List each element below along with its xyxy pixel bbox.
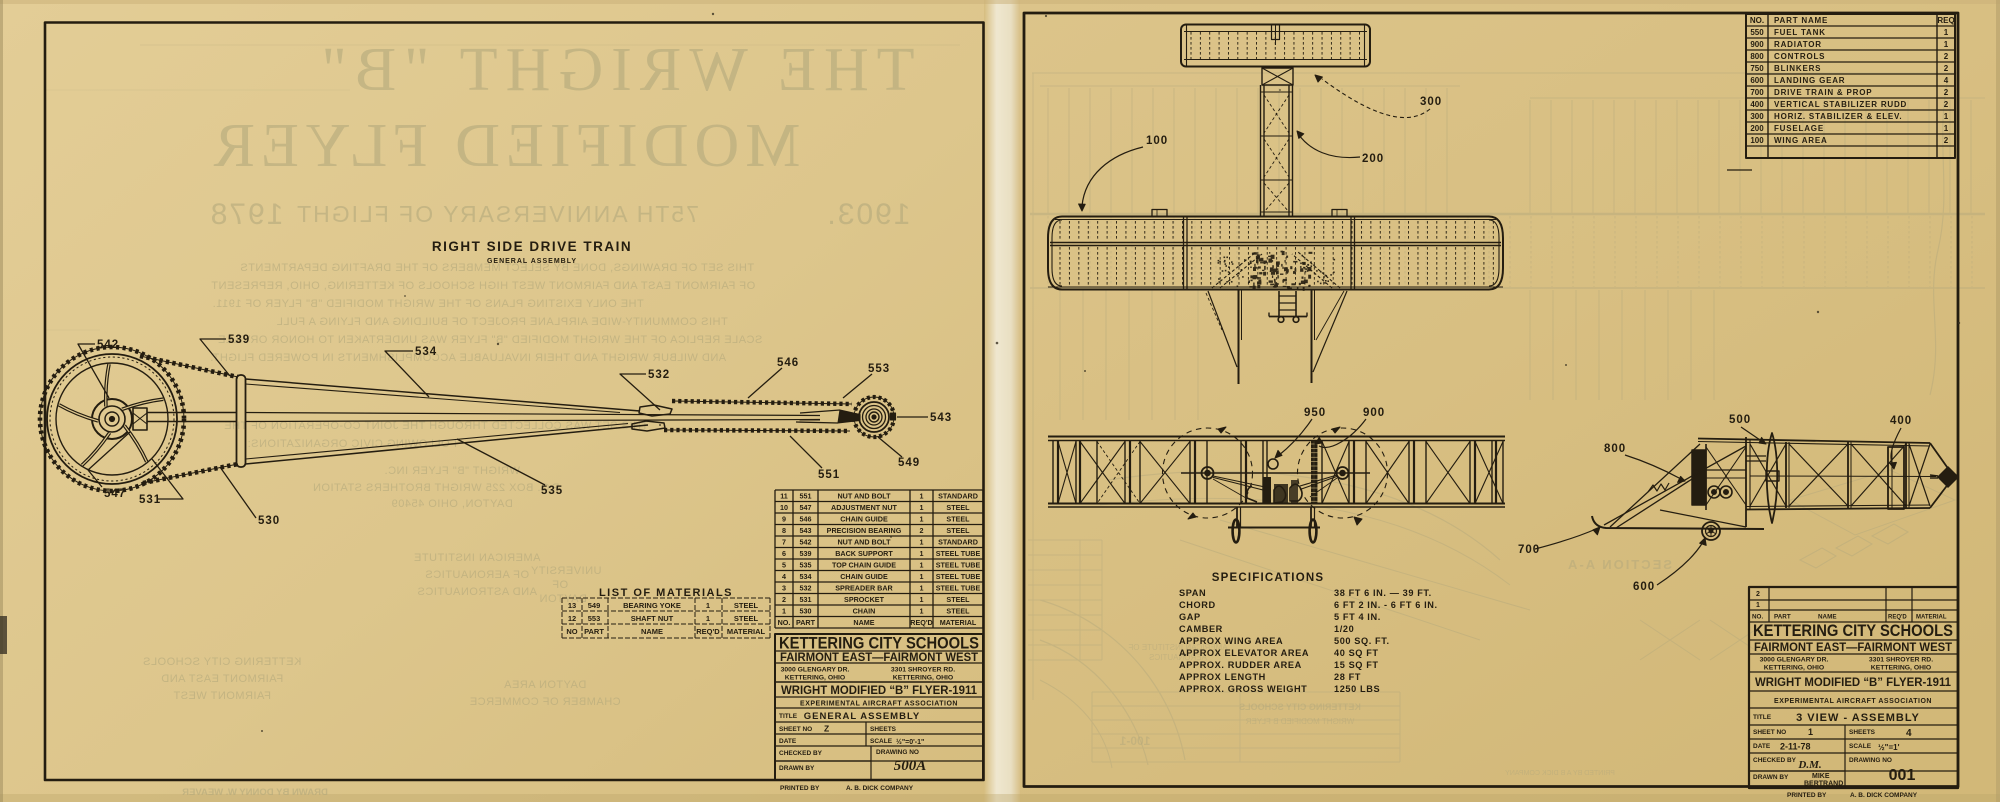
svg-text:547: 547	[104, 488, 126, 500]
svg-text:7: 7	[782, 538, 786, 547]
svg-text:TOP CHAIN GUIDE: TOP CHAIN GUIDE	[832, 561, 896, 570]
svg-text:CHAMBER OF COMMERCE: CHAMBER OF COMMERCE	[469, 696, 620, 708]
svg-text:GENERAL ASSEMBLY: GENERAL ASSEMBLY	[487, 258, 577, 265]
svg-text:1: 1	[920, 572, 924, 581]
svg-text:553: 553	[588, 614, 601, 623]
svg-text:DRIVE TRAIN & PROP: DRIVE TRAIN & PROP	[1774, 88, 1872, 97]
svg-text:534: 534	[415, 346, 437, 358]
svg-text:D.M.: D.M.	[1797, 759, 1821, 771]
svg-text:1: 1	[920, 538, 924, 547]
svg-text:500 SQ. FT.: 500 SQ. FT.	[1334, 636, 1390, 646]
svg-text:1: 1	[920, 607, 924, 616]
svg-text:9: 9	[782, 515, 786, 524]
svg-text:SCALE REPLICA OF THE WRIGHT MO: SCALE REPLICA OF THE WRIGHT MODIFIED "B"…	[218, 334, 763, 346]
svg-text:DRAWING NO: DRAWING NO	[876, 749, 919, 756]
svg-text:REQ'D: REQ'D	[910, 618, 932, 627]
svg-text:EXPERIMENTAL AIRCRAFT ASSO: EXPERIMENTAL AIRCRAFT ASSOCIATION	[1774, 698, 1932, 705]
svg-text:WRIGHT MODIFIED “B” FLYER-1: WRIGHT MODIFIED “B” FLYER-1911	[1755, 675, 1951, 689]
svg-text:GENERAL ASSEMBLY: GENERAL ASSEMBLY	[804, 711, 920, 722]
svg-text:PRECISION BEARING: PRECISION BEARING	[827, 526, 902, 535]
svg-text:BACK SUPPORT: BACK SUPPORT	[835, 549, 893, 558]
svg-text:10: 10	[780, 503, 788, 512]
svg-text:542: 542	[97, 339, 119, 351]
svg-text:EXPERIMENTAL AIRCRAFT ASSO: EXPERIMENTAL AIRCRAFT ASSOCIATION	[800, 701, 958, 708]
svg-text:DRAWING NO: DRAWING NO	[1849, 757, 1892, 764]
svg-text:VERTICAL STABILIZER RUDD: VERTICAL STABILIZER RUDD	[1774, 100, 1907, 109]
svg-text:1: 1	[920, 561, 924, 570]
svg-text:1: 1	[920, 549, 924, 558]
svg-text:KETTERING, OHIO: KETTERING, OHIO	[785, 675, 845, 682]
svg-text:1: 1	[920, 503, 924, 512]
svg-text:REQ'D: REQ'D	[1888, 615, 1907, 621]
svg-text:CHORD: CHORD	[1179, 600, 1216, 610]
svg-text:1: 1	[782, 607, 786, 616]
svg-text:4: 4	[1906, 728, 1912, 739]
svg-text:SPROCKET: SPROCKET	[844, 595, 885, 604]
svg-text:950: 950	[1304, 407, 1326, 419]
svg-text:HORIZ. STABILIZER & ELEV.: HORIZ. STABILIZER & ELEV.	[1774, 112, 1902, 121]
svg-text:100: 100	[1146, 135, 1168, 147]
svg-text:TITLE: TITLE	[1753, 714, 1772, 721]
svg-text:DATE: DATE	[779, 738, 797, 745]
svg-text:½"=1': ½"=1'	[1878, 743, 1900, 752]
svg-text:APPROX WING AREA: APPROX WING AREA	[1179, 636, 1283, 646]
svg-text:550: 550	[1750, 28, 1764, 37]
svg-text:KETTERING CITY SCHOOLS: KETTERING CITY SCHOOLS	[779, 635, 979, 653]
svg-text:AND ASTRONAUTICS: AND ASTRONAUTICS	[417, 586, 537, 598]
svg-text:NAME: NAME	[641, 627, 663, 636]
svg-text:WRIGHT MODIFIED B FLYER: WRIGHT MODIFIED B FLYER	[1245, 717, 1354, 726]
svg-text:ADJUSTMENT NUT: ADJUSTMENT NUT	[831, 503, 897, 512]
svg-text:SECTION A-A: SECTION A-A	[1566, 557, 1672, 572]
svg-text:FAIRMONT EAST—FAIRMONT WEST: FAIRMONT EAST—FAIRMONT WEST	[780, 652, 978, 664]
svg-text:A. B. DICK COMPANY: A. B. DICK COMPANY	[1850, 792, 1918, 799]
svg-text:6 FT 2 IN. - 6 FT 6 IN.: 6 FT 2 IN. - 6 FT 6 IN.	[1334, 600, 1438, 610]
svg-text:3: 3	[782, 584, 786, 593]
svg-text:FAIRMONT WEST: FAIRMONT WEST	[173, 690, 271, 702]
svg-text:6: 6	[782, 549, 786, 558]
svg-text:535: 535	[541, 485, 563, 497]
svg-text:532: 532	[648, 369, 670, 381]
svg-text:900: 900	[1750, 40, 1764, 49]
svg-text:RIGHT SIDE DRIVE TRAIN: RIGHT SIDE DRIVE TRAIN	[432, 239, 632, 254]
svg-text:PRINTED BY A B DICK COMPA: PRINTED BY A B DICK COMPANY	[1505, 770, 1615, 777]
svg-text:5: 5	[782, 561, 786, 570]
svg-text:APPROX ELEVATOR AREA: APPROX ELEVATOR AREA	[1179, 648, 1309, 658]
svg-text:SHEETS: SHEETS	[1849, 729, 1876, 736]
svg-text:4: 4	[782, 572, 786, 581]
svg-text:KETTERING CITY SCHOOLS: KETTERING CITY SCHOOLS	[1753, 622, 1953, 640]
svg-text:STEEL: STEEL	[946, 595, 970, 604]
svg-text:1903.: 1903.	[825, 198, 910, 231]
svg-text:WRIGHT "B" FLYER INC.: WRIGHT "B" FLYER INC.	[384, 465, 520, 477]
svg-text:SPAN: SPAN	[1179, 588, 1206, 598]
svg-text:STEEL TUBE: STEEL TUBE	[936, 572, 981, 581]
svg-text:1: 1	[1944, 28, 1949, 37]
svg-text:PART: PART	[796, 618, 816, 627]
svg-text:KETTERING, OHIO: KETTERING, OHIO	[1871, 665, 1931, 672]
svg-text:300: 300	[1420, 96, 1442, 108]
svg-text:8: 8	[782, 526, 786, 535]
svg-text:LIST OF MATERIALS: LIST OF MATERIALS	[599, 587, 733, 599]
svg-text:MODIFIED FLYER: MODIFIED FLYER	[208, 112, 801, 180]
svg-text:THE ONLY EXISTING PLANS OF THE: THE ONLY EXISTING PLANS OF THE WRIGHT MO…	[212, 298, 644, 310]
svg-text:900: 900	[1363, 407, 1385, 419]
svg-text:1: 1	[1808, 727, 1813, 737]
svg-text:200: 200	[1750, 124, 1764, 133]
svg-text:BEARING YOKE: BEARING YOKE	[623, 601, 681, 610]
svg-text:STEEL TUBE: STEEL TUBE	[936, 584, 981, 593]
svg-text:MIKE: MIKE	[1812, 773, 1830, 780]
svg-text:551: 551	[800, 492, 812, 501]
svg-text:28 FT: 28 FT	[1334, 672, 1361, 682]
svg-text:1: 1	[1944, 124, 1949, 133]
svg-text:SHEET NO: SHEET NO	[779, 726, 812, 733]
svg-text:FOLLOWING CIVIC ORGANIZATIONS:: FOLLOWING CIVIC ORGANIZATIONS:	[247, 438, 457, 450]
svg-text:DAYTON: DAYTON	[539, 593, 587, 605]
svg-text:NAME: NAME	[853, 618, 874, 627]
svg-text:1: 1	[706, 601, 710, 610]
svg-text:APPROX LENGTH: APPROX LENGTH	[1179, 672, 1266, 682]
svg-text:553: 553	[868, 363, 890, 375]
svg-text:PRINTED BY: PRINTED BY	[780, 785, 820, 792]
svg-text:2: 2	[1756, 591, 1760, 598]
svg-text:MATERIAL: MATERIAL	[727, 627, 766, 636]
svg-text:1: 1	[920, 492, 924, 501]
svg-text:NO.: NO.	[1750, 16, 1764, 25]
svg-text:547: 547	[800, 503, 812, 512]
svg-text:NUT AND BOLT: NUT AND BOLT	[837, 492, 891, 501]
svg-text:12: 12	[568, 614, 576, 623]
svg-text:SHEET NO: SHEET NO	[1753, 729, 1786, 736]
svg-text:700: 700	[1518, 544, 1540, 556]
svg-text:700: 700	[1750, 88, 1764, 97]
svg-text:1: 1	[920, 584, 924, 593]
svg-text:THE WRIGHT "B": THE WRIGHT "B"	[313, 36, 914, 104]
svg-text:STEEL TUBE: STEEL TUBE	[936, 549, 981, 558]
svg-text:NO.: NO.	[1752, 614, 1763, 621]
svg-text:RADIATOR: RADIATOR	[1774, 40, 1822, 49]
svg-text:SCALE: SCALE	[1849, 743, 1872, 750]
svg-text:4: 4	[1944, 76, 1949, 85]
svg-text:531: 531	[800, 595, 812, 604]
svg-text:1978: 1978	[209, 198, 284, 231]
svg-text:001: 001	[1889, 767, 1916, 784]
svg-text:STEEL: STEEL	[734, 614, 759, 623]
svg-text:530: 530	[800, 607, 812, 616]
svg-text:1/20: 1/20	[1334, 624, 1354, 634]
svg-text:AND WILBUR WRIGHT AND THEIR IN: AND WILBUR WRIGHT AND THEIR INVALUABLE A…	[210, 352, 726, 364]
svg-text:AMERICAN INSTITUTE: AMERICAN INSTITUTE	[414, 552, 541, 564]
svg-text:546: 546	[800, 515, 812, 524]
svg-text:549: 549	[898, 457, 920, 469]
svg-text:STANDARD: STANDARD	[938, 538, 978, 547]
svg-text:TITLE: TITLE	[779, 713, 798, 720]
svg-text:11: 11	[780, 492, 788, 501]
svg-text:750: 750	[1750, 64, 1764, 73]
svg-text:OF AERONAUTICS: OF AERONAUTICS	[425, 569, 529, 581]
svg-text:NUT AND BOLT: NUT AND BOLT	[837, 538, 891, 547]
svg-text:FAIRMONT EAST AND: FAIRMONT EAST AND	[161, 673, 283, 685]
svg-text:FUSELAGE: FUSELAGE	[1774, 124, 1824, 133]
svg-text:1: 1	[1944, 112, 1949, 121]
svg-text:UNIVERSITY: UNIVERSITY	[530, 565, 601, 577]
svg-text:STEEL: STEEL	[946, 526, 970, 535]
svg-text:REQ: REQ	[1937, 16, 1954, 25]
svg-text:PART: PART	[1774, 614, 1791, 621]
svg-text:OF FAIRMONT EAST AND FAIRMONT: OF FAIRMONT EAST AND FAIRMONT WEST HIGH …	[211, 280, 755, 292]
svg-text:800: 800	[1750, 52, 1764, 61]
svg-text:600: 600	[1633, 581, 1655, 593]
svg-text:3000 GLENGARY DR.: 3000 GLENGARY DR.	[1760, 657, 1829, 664]
svg-text:400: 400	[1750, 100, 1764, 109]
svg-text:549: 549	[588, 601, 601, 610]
svg-text:530: 530	[258, 515, 280, 527]
svg-text:1: 1	[920, 595, 924, 604]
svg-text:SHAFT NUT: SHAFT NUT	[631, 614, 674, 623]
svg-text:2: 2	[920, 526, 924, 535]
svg-text:STEEL TUBE: STEEL TUBE	[936, 561, 981, 570]
svg-text:BLINKERS: BLINKERS	[1774, 64, 1821, 73]
svg-text:SPREADER BAR: SPREADER BAR	[835, 584, 893, 593]
svg-text:SCALE: SCALE	[870, 738, 893, 745]
svg-text:DRAWN BY: DRAWN BY	[1753, 774, 1789, 781]
svg-text:1: 1	[1944, 40, 1949, 49]
svg-text:DAYTON AREA: DAYTON AREA	[503, 679, 586, 691]
svg-text:APPROX. GROSS WEIGHT: APPROX. GROSS WEIGHT	[1179, 684, 1307, 694]
svg-text:532: 532	[800, 584, 812, 593]
svg-text:551: 551	[818, 469, 840, 481]
svg-text:STEEL: STEEL	[946, 515, 970, 524]
svg-text:REQ'D: REQ'D	[696, 627, 720, 636]
svg-text:SHEETS: SHEETS	[870, 726, 897, 733]
svg-text:534: 534	[800, 572, 812, 581]
svg-text:MATERIAL: MATERIAL	[940, 618, 977, 627]
svg-text:539: 539	[800, 549, 812, 558]
svg-text:2: 2	[1944, 88, 1949, 97]
svg-text:500: 500	[1729, 414, 1751, 426]
svg-text:PART NAME: PART NAME	[1774, 16, 1828, 25]
svg-text:3301 SHROYER RD.: 3301 SHROYER RD.	[891, 667, 955, 674]
svg-text:STEEL: STEEL	[946, 503, 970, 512]
svg-text:100: 100	[1750, 136, 1764, 145]
svg-text:GAP: GAP	[1179, 612, 1201, 622]
svg-text:STANDARD: STANDARD	[938, 492, 978, 501]
svg-text:PART: PART	[584, 627, 604, 636]
svg-text:DAYTON, OHIO 45409: DAYTON, OHIO 45409	[391, 498, 513, 510]
svg-text:PRINTED BY: PRINTED BY	[1787, 792, 1827, 799]
svg-text:2: 2	[1944, 52, 1949, 61]
svg-text:2-11-78: 2-11-78	[1780, 742, 1811, 752]
svg-text:500A: 500A	[894, 758, 927, 774]
svg-text:KETTERING CITY SCHOOLS: KETTERING CITY SCHOOLS	[143, 656, 302, 668]
svg-text:CAMBER: CAMBER	[1179, 624, 1223, 634]
svg-text:1: 1	[1756, 602, 1760, 609]
svg-text:2: 2	[1944, 136, 1949, 145]
svg-text:MATERIAL: MATERIAL	[1916, 615, 1947, 621]
svg-text:WRIGHT MODIFIED “B” FLYER-1: WRIGHT MODIFIED “B” FLYER-1911	[781, 685, 978, 697]
svg-text:STEEL: STEEL	[734, 601, 759, 610]
svg-text:A. B. DICK COMPANY: A. B. DICK COMPANY	[846, 785, 914, 792]
svg-text:LANDING GEAR: LANDING GEAR	[1774, 76, 1845, 85]
svg-text:3 VIEW - ASSEMBLY: 3 VIEW - ASSEMBLY	[1796, 712, 1920, 724]
svg-text:546: 546	[777, 357, 799, 369]
svg-text:FUEL TANK: FUEL TANK	[1774, 28, 1826, 37]
svg-text:543: 543	[930, 412, 952, 424]
svg-text:STEEL: STEEL	[946, 607, 970, 616]
svg-text:KETTERING, OHIO: KETTERING, OHIO	[893, 675, 953, 682]
svg-text:543: 543	[800, 526, 812, 535]
svg-text:BERTRAND: BERTRAND	[1804, 781, 1843, 788]
svg-text:38 FT 6 IN. — 39 FT.: 38 FT 6 IN. — 39 FT.	[1334, 588, 1432, 598]
svg-text:CHECKED BY: CHECKED BY	[1753, 757, 1797, 764]
svg-text:200: 200	[1362, 153, 1384, 165]
svg-text:3000 GLENGARY DR.: 3000 GLENGARY DR.	[781, 667, 850, 674]
svg-text:CHECKED BY: CHECKED BY	[779, 750, 823, 757]
svg-text:600: 600	[1750, 76, 1764, 85]
svg-text:DRAWN BY: DRAWN BY	[779, 765, 815, 772]
svg-text:539: 539	[228, 334, 250, 346]
svg-text:2: 2	[1944, 64, 1949, 73]
svg-text:535: 535	[800, 561, 812, 570]
svg-text:DRAWN BY DONNY W. WEAVER: DRAWN BY DONNY W. WEAVER	[182, 787, 328, 798]
svg-text:800: 800	[1604, 443, 1626, 455]
svg-text:THIS COMMUNITY-WIDE AIRPLANE P: THIS COMMUNITY-WIDE AIRPLANE PROJECT OF …	[276, 316, 727, 328]
svg-text:100-1: 100-1	[1119, 734, 1150, 748]
svg-text:1: 1	[706, 614, 710, 623]
svg-text:NO.: NO.	[778, 618, 791, 627]
svg-text:OF: OF	[552, 579, 568, 591]
svg-text:Z: Z	[824, 724, 829, 734]
svg-text:2: 2	[782, 595, 786, 604]
svg-text:400: 400	[1890, 415, 1912, 427]
svg-text:CHAIN GUIDE: CHAIN GUIDE	[840, 572, 888, 581]
svg-text:KETTERING CITY SCHOOLS: KETTERING CITY SCHOOLS	[1239, 702, 1361, 712]
svg-text:5 FT 4 IN.: 5 FT 4 IN.	[1334, 612, 1381, 622]
svg-text:NO: NO	[566, 627, 577, 636]
svg-text:FAIRMONT EAST—FAIRMONT WEST: FAIRMONT EAST—FAIRMONT WEST	[1754, 640, 1953, 654]
svg-text:CHAIN GUIDE: CHAIN GUIDE	[840, 515, 888, 524]
svg-text:15 SQ FT: 15 SQ FT	[1334, 660, 1379, 670]
svg-text:CONTROLS: CONTROLS	[1774, 52, 1825, 61]
svg-text:542: 542	[800, 538, 812, 547]
svg-text:APPROX. RUDDER AREA: APPROX. RUDDER AREA	[1179, 660, 1302, 670]
svg-text:40 SQ FT: 40 SQ FT	[1334, 648, 1379, 658]
svg-text:DATE: DATE	[1753, 743, 1771, 750]
svg-text:1: 1	[920, 515, 924, 524]
svg-text:KETTERING, OHIO: KETTERING, OHIO	[1764, 665, 1824, 672]
svg-text:3301 SHROYER RD.: 3301 SHROYER RD.	[1869, 657, 1933, 664]
svg-text:13: 13	[568, 601, 576, 610]
svg-text:531: 531	[139, 494, 161, 506]
svg-text:300: 300	[1750, 112, 1764, 121]
svg-text:1250 LBS: 1250 LBS	[1334, 684, 1380, 694]
svg-text:SPECIFICATIONS: SPECIFICATIONS	[1212, 572, 1324, 584]
svg-text:NAME: NAME	[1818, 614, 1837, 621]
svg-text:P.O. BOX 225 WRIGHT BROTHERS: P.O. BOX 225 WRIGHT BROTHERS STATION	[312, 482, 559, 494]
svg-text:CHAIN: CHAIN	[853, 607, 876, 616]
svg-text:2: 2	[1944, 100, 1949, 109]
svg-text:WING AREA: WING AREA	[1774, 136, 1828, 145]
svg-text:½"=0'-1": ½"=0'-1"	[896, 738, 924, 746]
svg-text:75TH ANNIVERSARY OF FLIGHT: 75TH ANNIVERSARY OF FLIGHT	[295, 201, 699, 227]
